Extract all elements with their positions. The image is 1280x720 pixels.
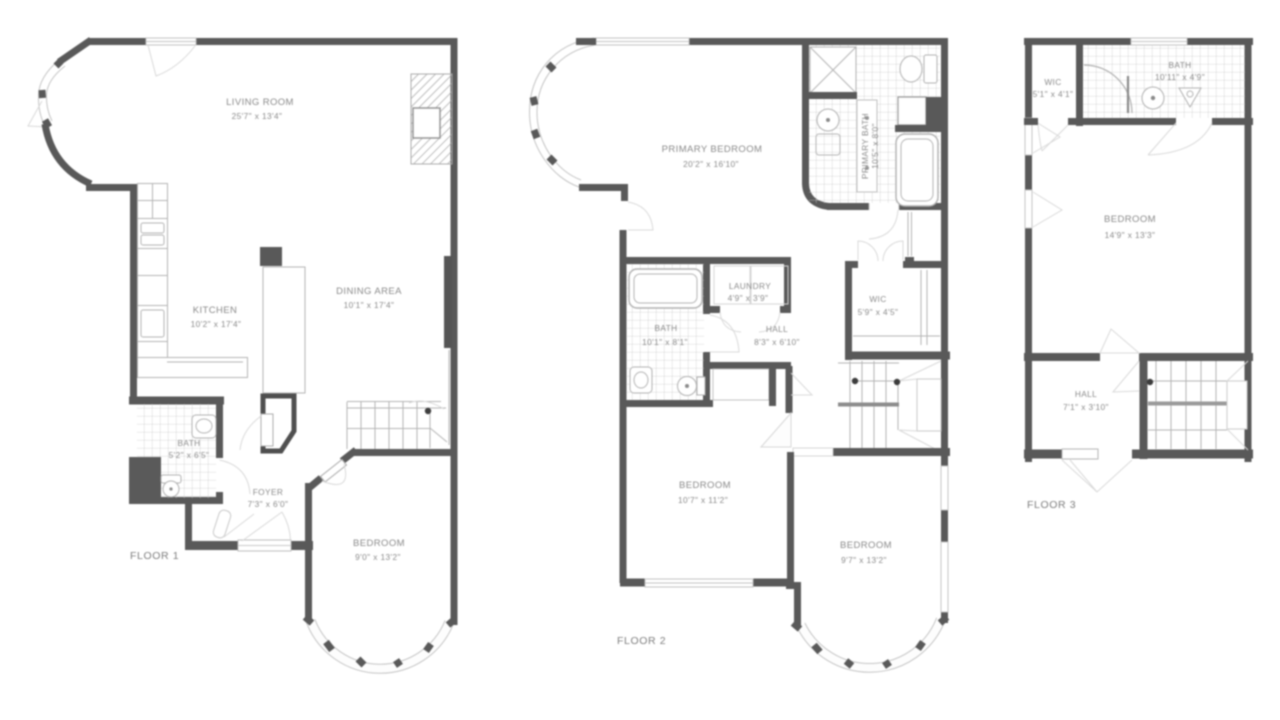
svg-text:LIVING ROOM: LIVING ROOM xyxy=(226,97,294,108)
svg-text:5'2" x 6'5": 5'2" x 6'5" xyxy=(169,450,210,460)
svg-text:HALL: HALL xyxy=(1075,389,1097,399)
svg-text:DINING AREA: DINING AREA xyxy=(336,286,402,297)
svg-text:9'0" x 13'2": 9'0" x 13'2" xyxy=(355,552,401,562)
svg-text:WIC: WIC xyxy=(1044,77,1061,87)
svg-text:14'9" x 13'3": 14'9" x 13'3" xyxy=(1105,230,1156,240)
svg-text:10'7" x 11'2": 10'7" x 11'2" xyxy=(678,495,728,505)
svg-text:BEDROOM: BEDROOM xyxy=(353,538,405,549)
svg-text:BATH: BATH xyxy=(177,438,200,448)
svg-text:BEDROOM: BEDROOM xyxy=(1104,214,1156,225)
svg-text:10'2" x 17'4": 10'2" x 17'4" xyxy=(191,319,242,329)
svg-text:BATH: BATH xyxy=(654,323,677,333)
svg-text:25'7" x 13'4": 25'7" x 13'4" xyxy=(232,111,283,121)
svg-text:10'11" x 4'9": 10'11" x 4'9" xyxy=(1155,72,1205,82)
svg-text:7'1" x 3'10": 7'1" x 3'10" xyxy=(1063,402,1109,412)
svg-text:PRIMARY BEDROOM: PRIMARY BEDROOM xyxy=(662,144,763,155)
svg-text:10'5" x 8'0": 10'5" x 8'0" xyxy=(870,123,880,169)
svg-text:HALL: HALL xyxy=(766,324,788,334)
svg-text:20'2" x 16'10": 20'2" x 16'10" xyxy=(683,159,739,169)
svg-text:4'9" x 3'9": 4'9" x 3'9" xyxy=(728,293,769,303)
svg-text:BEDROOM: BEDROOM xyxy=(679,480,731,491)
svg-text:BATH: BATH xyxy=(1168,60,1191,70)
svg-text:KITCHEN: KITCHEN xyxy=(193,305,238,316)
svg-text:FLOOR 1: FLOOR 1 xyxy=(130,550,179,562)
svg-text:8'3" x 6'10": 8'3" x 6'10" xyxy=(754,337,800,347)
svg-text:5'1" x 4'1": 5'1" x 4'1" xyxy=(1033,89,1074,99)
svg-text:FLOOR 3: FLOOR 3 xyxy=(1027,499,1076,511)
svg-text:7'3" x 6'0": 7'3" x 6'0" xyxy=(248,499,289,509)
svg-text:FLOOR 2: FLOOR 2 xyxy=(617,635,666,647)
svg-text:10'1" x 17'4": 10'1" x 17'4" xyxy=(344,300,395,310)
svg-text:BEDROOM: BEDROOM xyxy=(840,540,892,551)
svg-text:FOYER: FOYER xyxy=(253,487,284,497)
svg-text:PRIMARY BATH: PRIMARY BATH xyxy=(860,113,870,179)
svg-text:LAUNDRY: LAUNDRY xyxy=(729,281,771,291)
svg-text:10'1" x 8'1": 10'1" x 8'1" xyxy=(642,337,688,347)
svg-text:WIC: WIC xyxy=(869,294,886,304)
svg-text:5'9" x 4'5": 5'9" x 4'5" xyxy=(858,307,899,317)
svg-text:9'7" x 13'2": 9'7" x 13'2" xyxy=(841,555,887,565)
